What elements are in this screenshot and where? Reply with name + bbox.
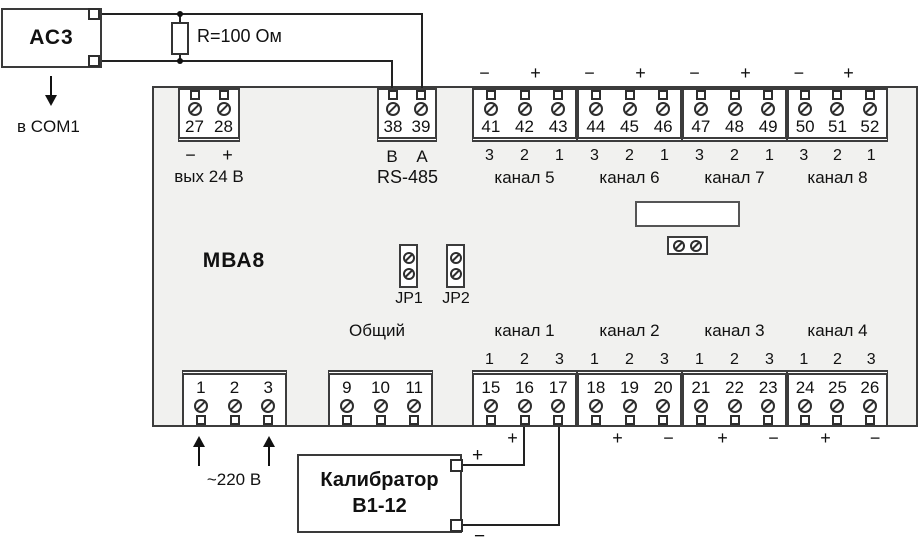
terminal-42: 42 xyxy=(508,90,542,137)
channel1-positions: 123 xyxy=(472,351,577,368)
terminal-pin xyxy=(730,90,740,100)
terminal-39: 39 xyxy=(407,90,435,137)
channel4-caption: канал 4 xyxy=(787,322,888,340)
terminal-pin xyxy=(376,415,386,425)
terminal-3: 3 xyxy=(251,375,285,425)
terminal-pin xyxy=(730,415,740,425)
terminal-pin xyxy=(591,90,601,100)
plus-sign: + xyxy=(212,146,243,164)
power-label: ~220 В xyxy=(189,471,279,489)
screw-icon xyxy=(798,102,812,116)
minus-sign: − xyxy=(756,429,791,447)
terminal-pin xyxy=(832,90,842,100)
device-name: МВА8 xyxy=(186,249,282,273)
terminal-10: 10 xyxy=(364,375,398,425)
screw-pair-box xyxy=(667,236,708,255)
minus-sign: − xyxy=(858,429,892,447)
terminal-pin xyxy=(591,415,601,425)
channel1-polarity: + xyxy=(472,429,577,447)
ac3-terminal xyxy=(88,8,100,20)
plus-sign: + xyxy=(728,64,763,82)
screw-icon xyxy=(217,102,231,116)
terminal-pin xyxy=(263,415,273,425)
terminal-pin xyxy=(658,90,668,100)
junction-dot xyxy=(177,58,183,64)
terminal-41: 41 xyxy=(474,90,508,137)
terminal-17: 17 xyxy=(541,375,575,425)
plus-sign: + xyxy=(705,429,740,447)
screw-icon xyxy=(761,102,775,116)
common-label: Общий xyxy=(327,322,427,340)
screw-icon xyxy=(798,399,812,413)
screw-icon xyxy=(551,102,565,116)
plus-sign: + xyxy=(809,429,843,447)
screw-icon xyxy=(656,399,670,413)
minus-sign: − xyxy=(677,64,712,82)
terminal-38: 38 xyxy=(379,90,407,137)
rs485-lines: B A xyxy=(377,147,437,167)
screw-icon xyxy=(589,399,603,413)
out24-caption: вых 24 В xyxy=(160,168,258,186)
terminal-pin xyxy=(696,90,706,100)
terminal-pin xyxy=(219,90,229,100)
screw-icon xyxy=(194,399,208,413)
terminal-block-channel6: 44 45 46 xyxy=(577,88,682,142)
terminal-block-channel3: 21 22 23 xyxy=(682,370,787,427)
terminal-pin xyxy=(800,90,810,100)
plus-sign: + xyxy=(600,429,635,447)
screw-icon xyxy=(656,102,670,116)
screw-icon xyxy=(518,399,532,413)
screw-icon xyxy=(589,102,603,116)
calibrator-device: Калибратор В1-12 xyxy=(297,454,462,533)
plus-sign: + xyxy=(472,446,483,465)
screw-icon xyxy=(830,399,844,413)
line-a-label: A xyxy=(407,147,437,167)
minus-sign: − xyxy=(175,146,206,164)
screw-icon xyxy=(863,399,877,413)
com1-label: в COM1 xyxy=(17,118,80,136)
minus-sign: − xyxy=(467,64,502,82)
ac3-terminal xyxy=(88,55,100,67)
terminal-45: 45 xyxy=(613,90,647,137)
minus-sign: − xyxy=(474,527,485,538)
terminal-46: 46 xyxy=(646,90,680,137)
screw-icon xyxy=(673,240,685,252)
channel5-caption: канал 5 xyxy=(472,169,577,187)
terminal-block-rs485: 38 39 xyxy=(377,88,437,142)
screw-icon xyxy=(407,399,421,413)
screw-icon xyxy=(728,399,742,413)
screw-icon xyxy=(690,240,702,252)
terminal-block-power: 1 2 3 xyxy=(182,370,287,427)
terminal-15: 15 xyxy=(474,375,508,425)
screw-icon xyxy=(623,399,637,413)
terminal-pin xyxy=(416,90,426,100)
terminal-16: 16 xyxy=(508,375,542,425)
terminal-11: 11 xyxy=(397,375,431,425)
resistor-symbol xyxy=(171,22,189,55)
screw-icon xyxy=(450,252,462,264)
screw-icon xyxy=(484,102,498,116)
terminal-pin xyxy=(865,90,875,100)
channel6-caption: канал 6 xyxy=(577,169,682,187)
terminal-pin xyxy=(486,415,496,425)
line-b-label: B xyxy=(377,147,407,167)
plus-sign: + xyxy=(518,64,553,82)
terminal-1: 1 xyxy=(184,375,218,425)
resistor-label: R=100 Ом xyxy=(197,27,282,45)
terminal-block-out24: 27 28 xyxy=(178,88,240,142)
wiring-diagram: R=100 Ом 27 28 − + вых 24 В 38 39 B A RS… xyxy=(0,0,922,538)
terminal-20: 20 xyxy=(646,375,680,425)
channel2-positions: 123 xyxy=(577,351,682,368)
wire-ac3-to-b xyxy=(99,60,393,62)
label-window xyxy=(635,201,740,227)
terminal-block-common: 9 10 11 xyxy=(328,370,433,427)
channel5-polarity: − + xyxy=(472,64,577,82)
calibrator-name: Калибратор xyxy=(320,469,438,492)
plus-sign: + xyxy=(832,64,866,82)
channel6-polarity: − + xyxy=(577,64,682,82)
wire-ac3-to-a-drop xyxy=(421,13,423,92)
terminal-pin xyxy=(388,90,398,100)
arrow-stem xyxy=(198,446,200,466)
rs485-caption: RS-485 xyxy=(377,168,437,186)
minus-sign: − xyxy=(651,429,686,447)
channel1-caption: канал 1 xyxy=(472,322,577,340)
screw-icon xyxy=(830,102,844,116)
terminal-28: 28 xyxy=(209,90,238,137)
terminal-21: 21 xyxy=(684,375,718,425)
terminal-51: 51 xyxy=(821,90,853,137)
terminal-block-channel5: 41 42 43 xyxy=(472,88,577,142)
calibrator-model: В1-12 xyxy=(352,495,406,518)
minus-sign: − xyxy=(782,64,816,82)
terminal-pin xyxy=(658,415,668,425)
screw-icon xyxy=(414,102,428,116)
terminal-19: 19 xyxy=(613,375,647,425)
screw-icon xyxy=(386,102,400,116)
terminal-pin xyxy=(409,415,419,425)
terminal-pin xyxy=(196,415,206,425)
channel8-polarity: − + xyxy=(787,64,888,82)
channel3-caption: канал 3 xyxy=(682,322,787,340)
arrow-stem xyxy=(268,446,270,466)
channel8-positions: 321 xyxy=(787,147,888,164)
terminal-pin xyxy=(865,415,875,425)
terminal-pin xyxy=(342,415,352,425)
terminal-pin xyxy=(553,90,563,100)
channel4-positions: 123 xyxy=(787,351,888,368)
terminal-44: 44 xyxy=(579,90,613,137)
terminal-pin xyxy=(763,415,773,425)
terminal-47: 47 xyxy=(684,90,718,137)
terminal-block-channel4: 24 25 26 xyxy=(787,370,888,427)
screw-icon xyxy=(340,399,354,413)
wire-ac3-to-a xyxy=(99,13,423,15)
screw-icon xyxy=(403,268,415,280)
channel7-caption: канал 7 xyxy=(682,169,787,187)
screw-icon xyxy=(450,268,462,280)
channel7-polarity: − + xyxy=(682,64,787,82)
channel3-polarity: +− xyxy=(682,429,787,447)
terminal-block-channel1: 15 16 17 xyxy=(472,370,577,427)
terminal-pin xyxy=(763,90,773,100)
terminal-23: 23 xyxy=(751,375,785,425)
terminal-27: 27 xyxy=(180,90,209,137)
jumper-jp2 xyxy=(446,244,465,288)
screw-icon xyxy=(761,399,775,413)
terminal-block-channel8: 50 51 52 xyxy=(787,88,888,142)
terminal-25: 25 xyxy=(821,375,853,425)
screw-icon xyxy=(863,102,877,116)
channel4-polarity: +− xyxy=(787,429,888,447)
terminal-pin xyxy=(625,415,635,425)
terminal-pin xyxy=(520,90,530,100)
jumper2-label: JP2 xyxy=(436,290,476,308)
terminal-pin xyxy=(625,90,635,100)
channel6-positions: 321 xyxy=(577,147,682,164)
terminal-9: 9 xyxy=(330,375,364,425)
plus-sign: + xyxy=(495,429,530,447)
screw-icon xyxy=(403,252,415,264)
terminal-52: 52 xyxy=(854,90,886,137)
screw-icon xyxy=(261,399,275,413)
calibrator-terminal-plus xyxy=(450,459,463,472)
terminal-pin xyxy=(486,90,496,100)
terminal-2: 2 xyxy=(218,375,252,425)
minus-sign: − xyxy=(572,64,607,82)
channel2-caption: канал 2 xyxy=(577,322,682,340)
channel7-positions: 321 xyxy=(682,147,787,164)
terminal-block-channel2: 18 19 20 xyxy=(577,370,682,427)
screw-icon xyxy=(694,399,708,413)
jumper1-label: JP1 xyxy=(389,290,429,308)
screw-icon xyxy=(228,399,242,413)
terminal-49: 49 xyxy=(751,90,785,137)
arrow-down-icon xyxy=(45,95,57,106)
screw-icon xyxy=(623,102,637,116)
calibrator-terminal-minus xyxy=(450,519,463,532)
terminal-pin xyxy=(696,415,706,425)
out24-polarity: − + xyxy=(178,146,240,164)
terminal-pin xyxy=(230,415,240,425)
terminal-50: 50 xyxy=(789,90,821,137)
screw-icon xyxy=(551,399,565,413)
terminal-26: 26 xyxy=(854,375,886,425)
terminal-pin xyxy=(190,90,200,100)
screw-icon xyxy=(484,399,498,413)
terminal-24: 24 xyxy=(789,375,821,425)
junction-dot xyxy=(177,11,183,17)
jumper-jp1 xyxy=(399,244,418,288)
terminal-43: 43 xyxy=(541,90,575,137)
screw-icon xyxy=(728,102,742,116)
terminal-pin xyxy=(832,415,842,425)
terminal-18: 18 xyxy=(579,375,613,425)
terminal-pin xyxy=(800,415,810,425)
terminal-22: 22 xyxy=(718,375,752,425)
channel3-positions: 123 xyxy=(682,351,787,368)
screw-icon xyxy=(188,102,202,116)
ac3-device: АС3 xyxy=(1,8,102,68)
screw-icon xyxy=(694,102,708,116)
terminal-block-channel7: 47 48 49 xyxy=(682,88,787,142)
channel8-caption: канал 8 xyxy=(787,169,888,187)
plus-sign: + xyxy=(623,64,658,82)
screw-icon xyxy=(518,102,532,116)
screw-icon xyxy=(374,399,388,413)
arrow-stem xyxy=(50,76,52,97)
terminal-48: 48 xyxy=(718,90,752,137)
terminal-pin xyxy=(553,415,563,425)
ac3-label: АС3 xyxy=(29,26,74,50)
channel5-positions: 321 xyxy=(472,147,577,164)
terminal-pin xyxy=(520,415,530,425)
channel2-polarity: +− xyxy=(577,429,682,447)
